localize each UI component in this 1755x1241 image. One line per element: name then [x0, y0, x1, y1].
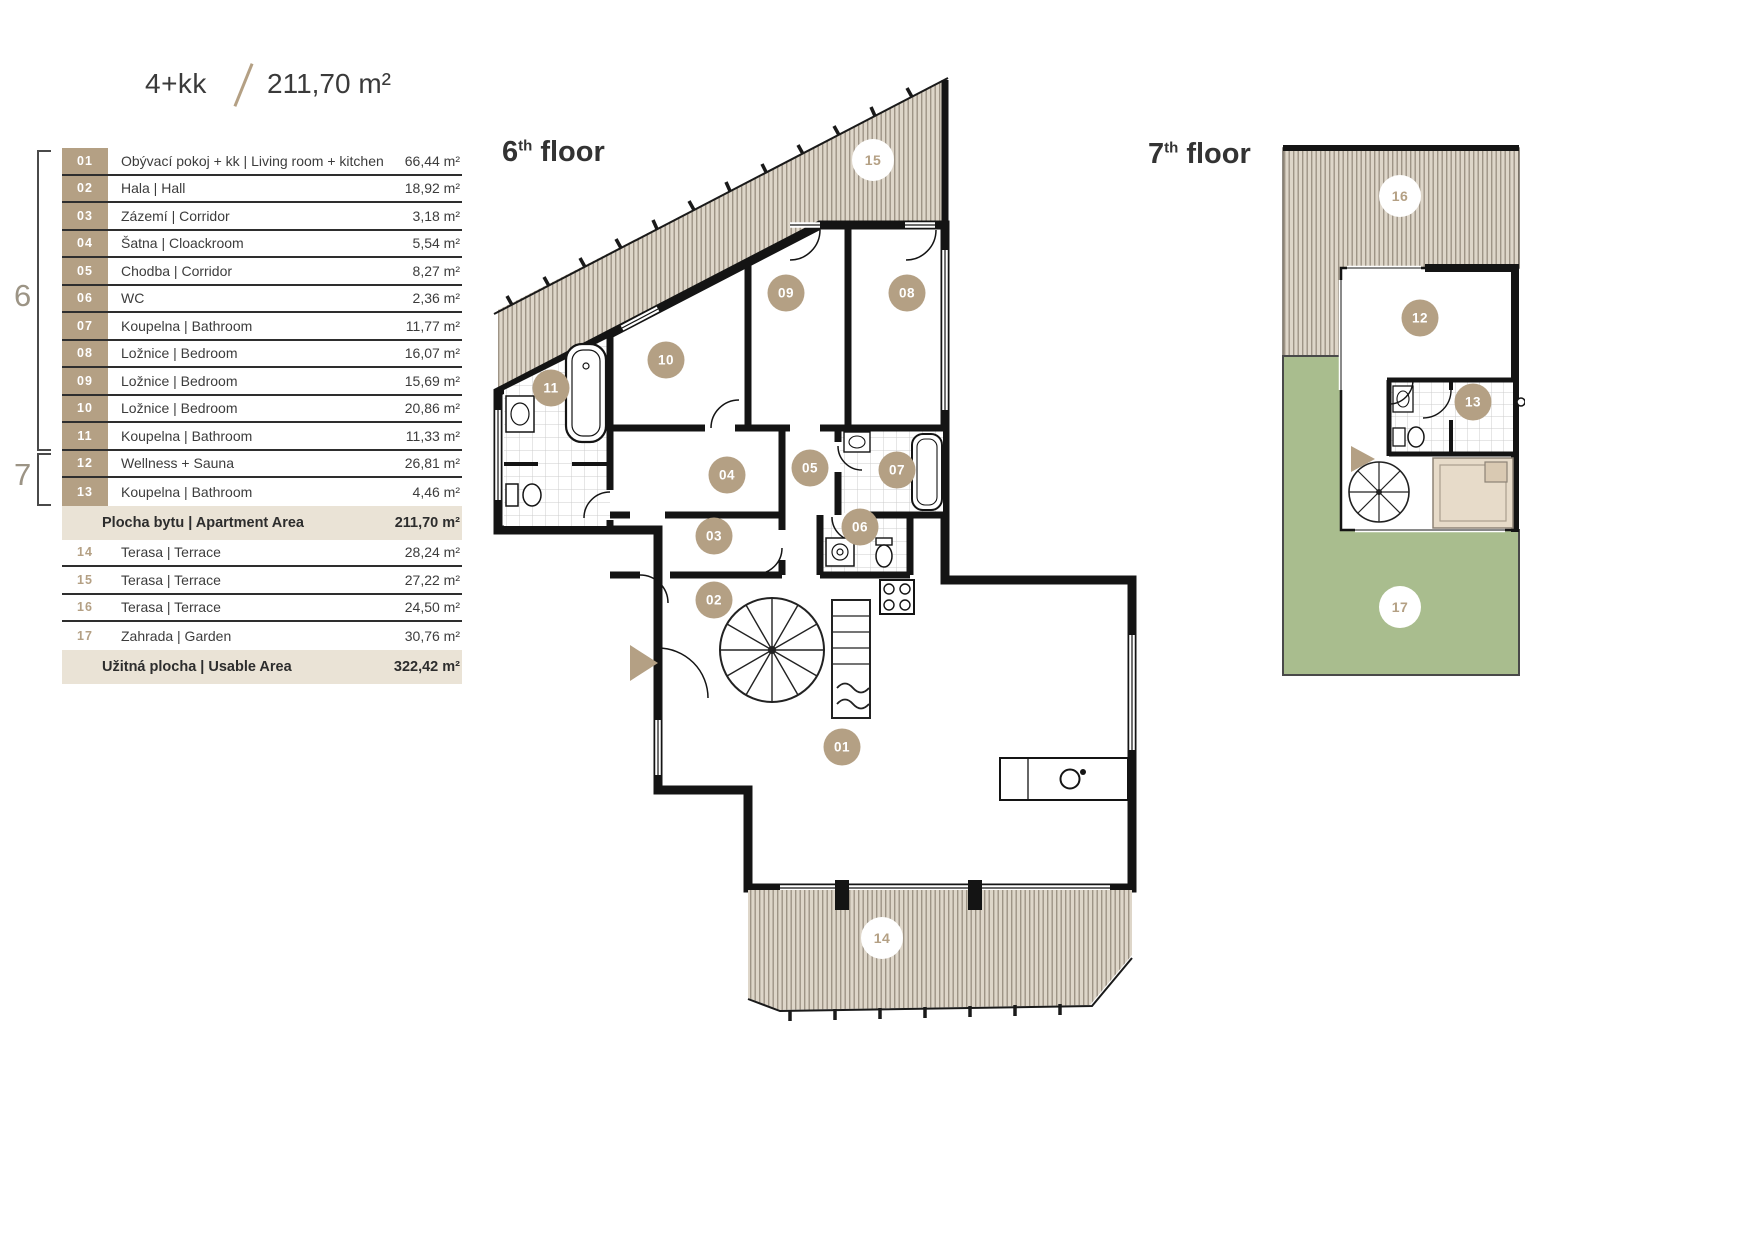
outdoor-number: 17 — [62, 622, 108, 650]
room-badge-03: 03 — [696, 518, 733, 555]
room-badge-07: 07 — [879, 452, 916, 489]
room-badge-09: 09 — [768, 275, 805, 312]
kitchen-island — [1000, 758, 1128, 800]
floorplan-page: 4+kk 211,70 m² 6 7 01Obývací pokoj + kk … — [0, 0, 1755, 1241]
floor7-bracket-label: 7 — [14, 457, 31, 493]
table-row: 04Šatna | Cloackroom5,54 m² — [62, 231, 462, 259]
room-badge-02: 02 — [696, 582, 733, 619]
floor7-plan: 16 12 13 17 — [1275, 140, 1525, 685]
garden-badge-17: 17 — [1379, 586, 1421, 628]
room-badge-08: 08 — [889, 275, 926, 312]
spiral-staircase-7-icon — [1349, 462, 1409, 522]
divider-slash — [233, 63, 253, 107]
bathroom-13 — [1387, 380, 1525, 456]
floor7-label: 7thfloor — [1148, 138, 1251, 171]
room-number-chip: 01 — [62, 148, 108, 174]
room-badge-10: 10 — [648, 342, 685, 379]
floor6-plan-drawing — [480, 60, 1140, 1040]
table-row: 16Terasa | Terrace24,50 m² — [62, 595, 462, 623]
floor6-bracket-label: 6 — [14, 278, 31, 314]
outdoor-number: 15 — [62, 567, 108, 593]
table-row: 03Zázemí | Corridor3,18 m² — [62, 203, 462, 231]
table-row: 13Koupelna | Bathroom4,46 m² — [62, 478, 462, 506]
total-area: 211,70 m² — [267, 68, 391, 100]
room-number-chip: 12 — [62, 451, 108, 477]
room-number-chip: 11 — [62, 423, 108, 449]
room-number-chip: 13 — [62, 478, 108, 506]
room-number-chip: 04 — [62, 231, 108, 257]
room-number-chip: 07 — [62, 313, 108, 339]
room-badge-04: 04 — [709, 457, 746, 494]
usable-area-row: Užitná plocha | Usable Area 322,42 m² — [62, 650, 462, 684]
terrace-badge-14: 14 — [861, 917, 903, 959]
room-badge-12: 12 — [1402, 300, 1439, 337]
table-row: 10Ložnice | Bedroom20,86 m² — [62, 396, 462, 424]
stove-icon — [880, 580, 914, 614]
room-badge-13: 13 — [1455, 384, 1492, 421]
table-row: 08Ložnice | Bedroom16,07 m² — [62, 341, 462, 369]
room-badge-05: 05 — [792, 450, 829, 487]
room-number-chip: 03 — [62, 203, 108, 229]
outdoor-number: 16 — [62, 595, 108, 621]
room-number-chip: 05 — [62, 258, 108, 284]
sauna — [1433, 458, 1513, 528]
room-number-chip: 02 — [62, 176, 108, 202]
table-row: 14Terasa | Terrace28,24 m² — [62, 540, 462, 568]
floor6-plan: 15 09 08 10 11 04 05 07 03 06 02 01 14 — [480, 60, 1140, 1040]
table-row: 17Zahrada | Garden30,76 m² — [62, 622, 462, 650]
table-row: 05Chodba | Corridor8,27 m² — [62, 258, 462, 286]
layout-type: 4+kk — [145, 68, 207, 100]
table-row: 12Wellness + Sauna26,81 m² — [62, 451, 462, 479]
outdoor-number: 14 — [62, 540, 108, 566]
table-row: 11Koupelna | Bathroom11,33 m² — [62, 423, 462, 451]
floor6-bracket — [37, 150, 51, 451]
room-badge-11: 11 — [533, 370, 570, 407]
table-row: 07Koupelna | Bathroom11,77 m² — [62, 313, 462, 341]
room-badge-01: 01 — [824, 729, 861, 766]
table-row: 06WC2,36 m² — [62, 286, 462, 314]
table-row: 02Hala | Hall18,92 m² — [62, 176, 462, 204]
bathtub-icon — [566, 344, 606, 442]
room-badge-06: 06 — [842, 509, 879, 546]
room-legend-table: 01Obývací pokoj + kk | Living room + kit… — [62, 148, 462, 684]
terrace-badge-15: 15 — [852, 139, 894, 181]
table-row: 01Obývací pokoj + kk | Living room + kit… — [62, 148, 462, 176]
room-number-chip: 06 — [62, 286, 108, 312]
room-number-chip: 08 — [62, 341, 108, 367]
room-number-chip: 09 — [62, 368, 108, 394]
terrace-badge-16: 16 — [1379, 175, 1421, 217]
table-row: 15Terasa | Terrace27,22 m² — [62, 567, 462, 595]
table-row: 09Ložnice | Bedroom15,69 m² — [62, 368, 462, 396]
floor7-bracket — [37, 453, 51, 506]
terrace-14 — [748, 880, 1132, 1021]
room-number-chip: 10 — [62, 396, 108, 422]
apartment-area-row: Plocha bytu | Apartment Area 211,70 m² — [62, 506, 462, 540]
